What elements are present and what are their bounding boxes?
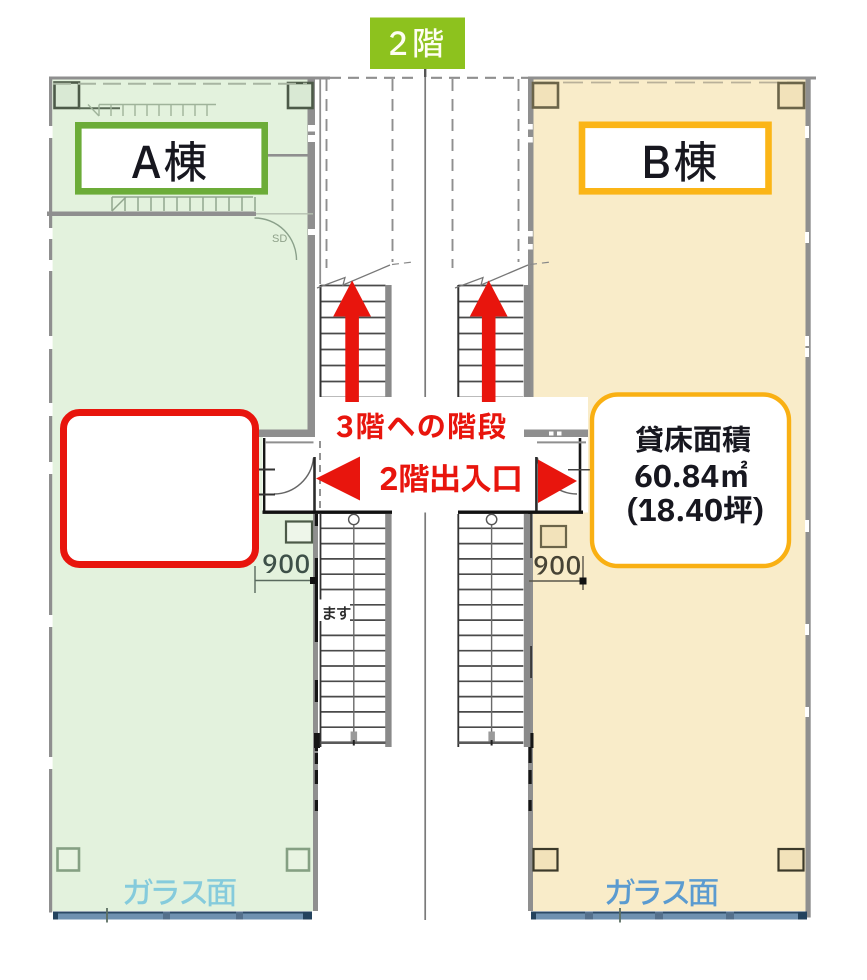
svg-text:SD: SD xyxy=(272,233,287,245)
